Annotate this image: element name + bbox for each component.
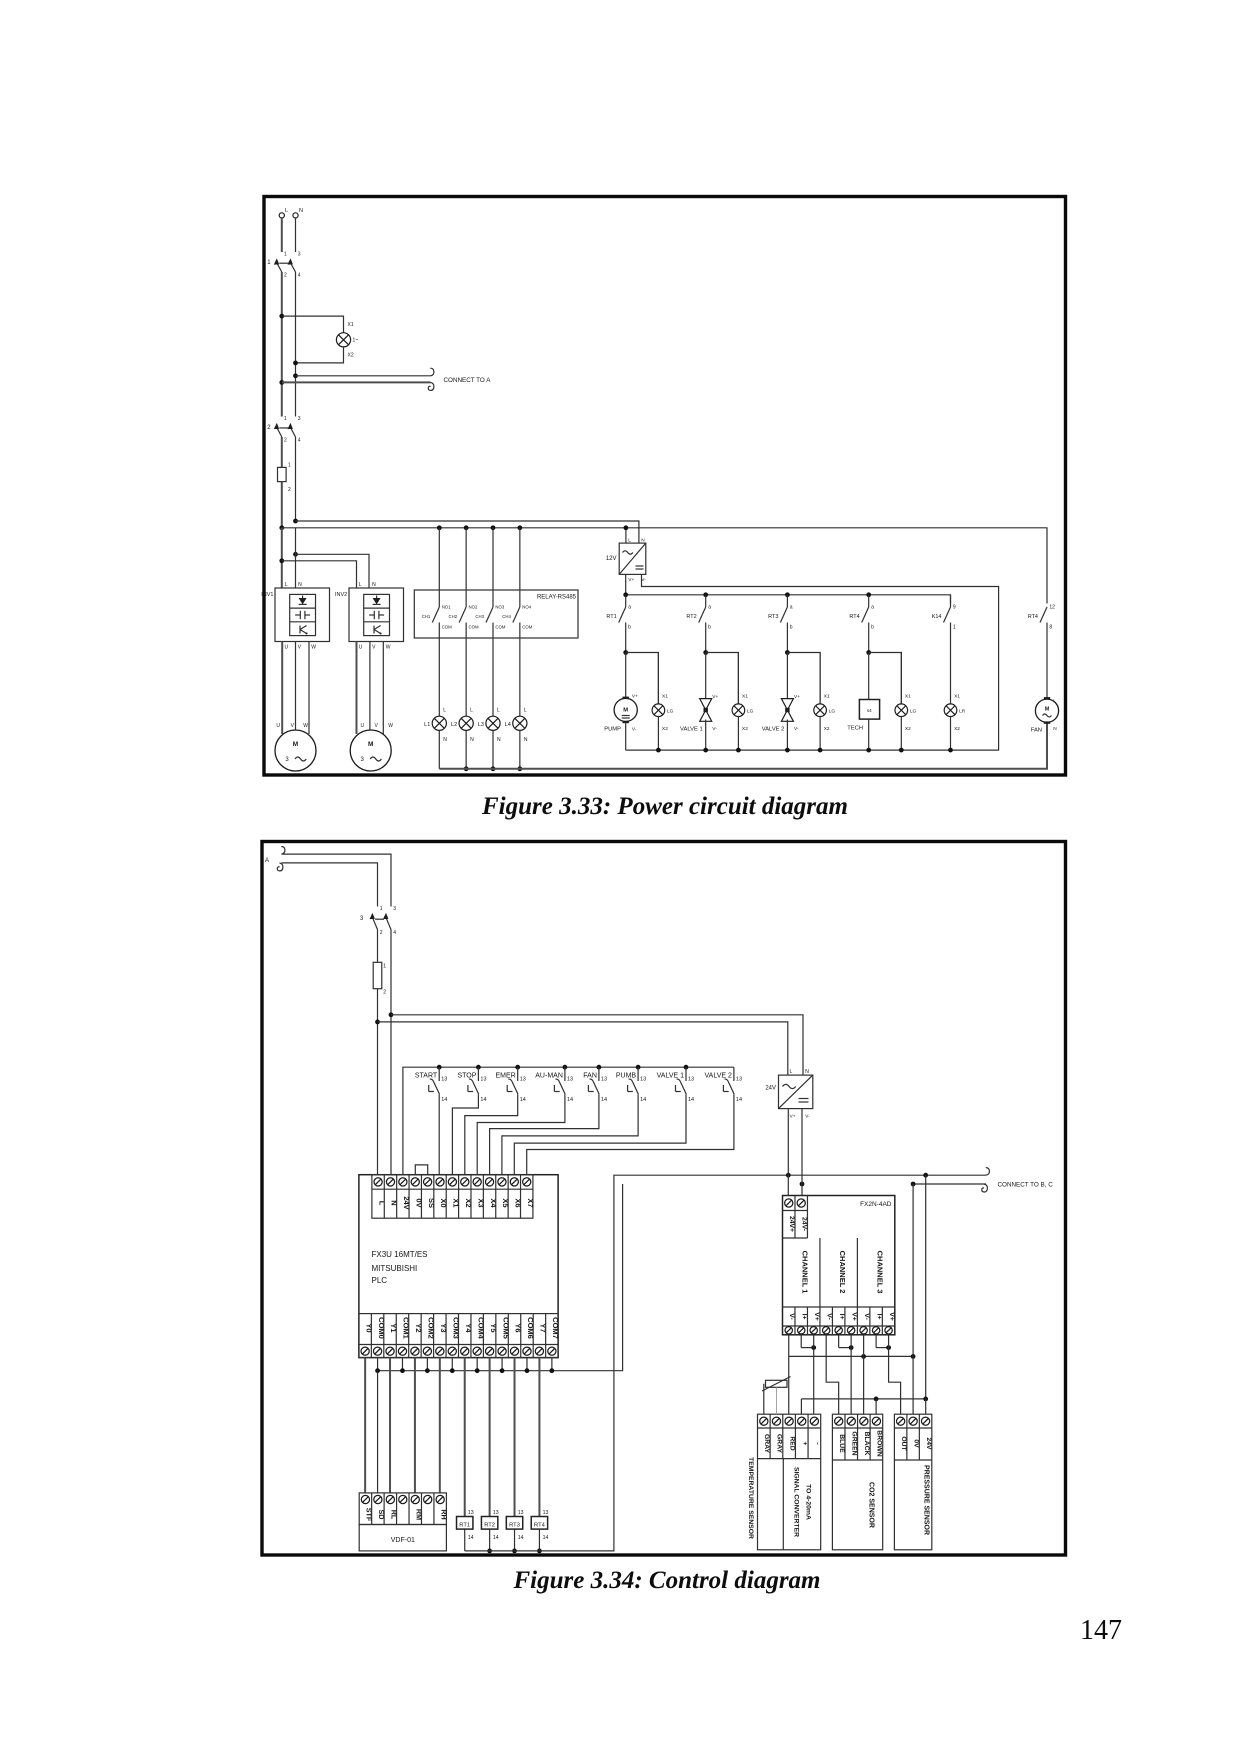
svg-text:VDF-01: VDF-01	[391, 1537, 415, 1544]
svg-text:14: 14	[480, 1097, 486, 1103]
svg-text:L: L	[285, 582, 288, 588]
svg-text:b: b	[628, 625, 631, 631]
svg-text:L: L	[628, 538, 631, 544]
svg-text:M: M	[1045, 707, 1050, 713]
svg-text:V: V	[291, 723, 295, 729]
svg-text:V-: V-	[788, 1313, 795, 1319]
svg-text:13: 13	[520, 1077, 526, 1083]
svg-text:COM: COM	[495, 625, 505, 630]
svg-text:13: 13	[567, 1077, 573, 1083]
svg-text:BLUE: BLUE	[838, 1434, 845, 1453]
svg-text:RT4: RT4	[534, 1522, 546, 1528]
svg-text:L: L	[359, 582, 362, 588]
svg-text:0V: 0V	[414, 1198, 423, 1207]
svg-text:VALVE 1: VALVE 1	[657, 1073, 684, 1080]
svg-text:TECH: TECH	[847, 726, 863, 732]
svg-text:SIGNAL CONVERTER: SIGNAL CONVERTER	[793, 1467, 800, 1537]
svg-text:V+: V+	[794, 694, 800, 700]
svg-text:N: N	[524, 737, 528, 743]
svg-text:V: V	[375, 723, 379, 729]
svg-text:a: a	[871, 605, 874, 611]
svg-text:3: 3	[298, 252, 301, 258]
svg-text:EMER: EMER	[495, 1073, 515, 1080]
svg-text:14: 14	[518, 1535, 524, 1541]
svg-text:2: 2	[284, 273, 287, 279]
svg-text:12V: 12V	[606, 556, 617, 562]
svg-text:-: -	[814, 1442, 821, 1444]
svg-text:V: V	[298, 645, 302, 651]
svg-text:RT1: RT1	[606, 614, 616, 620]
svg-text:NO4: NO4	[522, 605, 531, 610]
svg-text:X6: X6	[514, 1198, 523, 1207]
svg-text:X1: X1	[742, 693, 748, 699]
svg-text:X1: X1	[824, 693, 830, 699]
svg-text:0V: 0V	[912, 1439, 919, 1448]
svg-text:Y6: Y6	[514, 1323, 523, 1332]
svg-text:SD: SD	[377, 1510, 386, 1520]
svg-text:X1: X1	[662, 693, 668, 699]
svg-text:X0: X0	[439, 1198, 448, 1207]
svg-text:V+: V+	[632, 694, 638, 700]
svg-text:8: 8	[1049, 625, 1052, 631]
svg-text:LR: LR	[959, 708, 966, 714]
svg-text:OUT: OUT	[900, 1436, 907, 1451]
svg-text:N: N	[1053, 726, 1057, 732]
svg-text:+: +	[801, 1442, 808, 1446]
svg-text:L: L	[377, 1201, 386, 1206]
svg-text:U: U	[276, 723, 280, 729]
svg-text:U: U	[359, 645, 363, 651]
svg-text:X3: X3	[476, 1198, 485, 1207]
svg-text:V+: V+	[628, 577, 634, 583]
svg-text:14: 14	[601, 1097, 607, 1103]
svg-text:9: 9	[953, 605, 956, 611]
svg-text:1: 1	[383, 964, 386, 970]
svg-text:NO1: NO1	[442, 605, 451, 610]
svg-text:13: 13	[518, 1510, 524, 1516]
svg-text:VALVE 1: VALVE 1	[680, 727, 703, 733]
svg-text:3: 3	[298, 416, 301, 422]
svg-text:V-: V-	[794, 726, 799, 732]
svg-text:V-: V-	[825, 1313, 832, 1319]
svg-text:FX2N-4AD: FX2N-4AD	[860, 1201, 892, 1208]
svg-text:VALVE 2: VALVE 2	[705, 1073, 732, 1080]
svg-text:3: 3	[360, 916, 364, 922]
svg-text:b: b	[790, 625, 793, 631]
svg-text:RH: RH	[439, 1509, 448, 1519]
svg-text:Y0: Y0	[364, 1323, 373, 1332]
svg-text:SS: SS	[427, 1198, 436, 1208]
svg-text:STOP: STOP	[457, 1073, 476, 1080]
svg-text:2: 2	[380, 930, 383, 936]
svg-text:14: 14	[520, 1097, 526, 1103]
svg-text:LG: LG	[910, 708, 917, 714]
svg-text:M: M	[293, 741, 298, 748]
svg-text:COM: COM	[522, 625, 532, 630]
svg-text:24V: 24V	[765, 1086, 776, 1092]
svg-text:COM: COM	[469, 625, 479, 630]
svg-text:COM: COM	[442, 625, 452, 630]
svg-text:RT3: RT3	[509, 1522, 520, 1528]
svg-text:X2: X2	[905, 726, 911, 732]
svg-text:13: 13	[468, 1510, 474, 1516]
svg-text:CONNECT TO B, C: CONNECT TO B, C	[998, 1181, 1054, 1188]
svg-text:X2: X2	[824, 726, 830, 732]
svg-text:14: 14	[441, 1097, 447, 1103]
svg-text:FX3U 16MT/ES: FX3U 16MT/ES	[372, 1250, 428, 1259]
svg-text:I+: I+	[838, 1314, 845, 1320]
svg-text:W: W	[303, 723, 308, 729]
svg-text:RELAY-RS485: RELAY-RS485	[537, 594, 577, 600]
svg-text:COM0: COM0	[377, 1317, 386, 1339]
svg-text:2: 2	[383, 990, 386, 996]
svg-text:FAN: FAN	[583, 1073, 597, 1080]
svg-text:13: 13	[688, 1077, 694, 1083]
svg-text:L: L	[1053, 698, 1056, 704]
svg-text:CH2: CH2	[449, 614, 458, 619]
svg-text:s4: s4	[867, 708, 872, 713]
svg-text:X1: X1	[905, 693, 911, 699]
svg-text:V+: V+	[850, 1312, 857, 1321]
svg-text:L2: L2	[451, 722, 457, 728]
svg-text:a: a	[790, 605, 793, 611]
svg-text:L: L	[497, 708, 500, 714]
svg-text:14: 14	[543, 1535, 549, 1541]
svg-text:BLACK: BLACK	[863, 1432, 870, 1456]
svg-text:M: M	[368, 741, 373, 748]
svg-text:L: L	[790, 1069, 793, 1075]
svg-text:COM4: COM4	[476, 1317, 485, 1339]
svg-text:Y4: Y4	[464, 1323, 473, 1333]
svg-text:START: START	[415, 1073, 438, 1080]
svg-text:1: 1	[288, 463, 291, 469]
svg-text:VALVE 2: VALVE 2	[762, 727, 785, 733]
svg-text:CO2 SENSOR: CO2 SENSOR	[868, 1482, 875, 1528]
svg-text:13: 13	[640, 1077, 646, 1083]
svg-text:CHANNEL 3: CHANNEL 3	[876, 1251, 885, 1294]
svg-text:RL: RL	[390, 1510, 399, 1520]
svg-text:RT4: RT4	[849, 614, 859, 620]
svg-text:4: 4	[393, 930, 396, 936]
svg-text:L: L	[285, 208, 288, 214]
svg-text:N: N	[443, 737, 447, 743]
svg-text:X2: X2	[662, 726, 668, 732]
svg-text:12: 12	[1049, 605, 1055, 611]
svg-text:L3: L3	[478, 722, 484, 728]
svg-text:U: U	[285, 645, 289, 651]
svg-text:U: U	[361, 723, 365, 729]
svg-text:NO3: NO3	[495, 605, 504, 610]
svg-text:1: 1	[267, 260, 271, 266]
svg-text:V+: V+	[712, 694, 718, 700]
svg-text:X5: X5	[501, 1198, 510, 1207]
svg-text:COM3: COM3	[451, 1317, 460, 1339]
svg-text:COM6: COM6	[526, 1317, 535, 1339]
svg-text:X1: X1	[954, 693, 960, 699]
svg-text:N: N	[298, 582, 302, 588]
svg-text:X4: X4	[489, 1198, 498, 1208]
svg-text:CHANNEL 2: CHANNEL 2	[838, 1251, 847, 1294]
svg-text:CHANNEL 1: CHANNEL 1	[801, 1251, 810, 1294]
svg-text:X2: X2	[464, 1198, 473, 1207]
svg-text:a: a	[708, 605, 711, 611]
svg-text:X2: X2	[954, 726, 960, 732]
svg-text:2: 2	[288, 487, 291, 493]
svg-text:I+: I+	[875, 1314, 882, 1320]
svg-text:TO 4-20mA: TO 4-20mA	[805, 1484, 812, 1520]
svg-text:24V: 24V	[402, 1196, 411, 1209]
svg-text:MITSUBISHI: MITSUBISHI	[372, 1264, 418, 1273]
svg-text:2: 2	[267, 425, 271, 431]
svg-text:1~: 1~	[353, 338, 359, 344]
svg-text:PLC: PLC	[372, 1276, 388, 1285]
svg-text:LG: LG	[829, 708, 836, 714]
svg-text:1: 1	[284, 416, 287, 422]
svg-text:INV1: INV1	[261, 592, 273, 598]
svg-text:V+: V+	[888, 1312, 895, 1321]
svg-text:V+: V+	[790, 1114, 796, 1120]
svg-text:N: N	[641, 538, 645, 544]
svg-text:Y3: Y3	[439, 1323, 448, 1332]
svg-text:A: A	[265, 858, 269, 864]
svg-text:K14: K14	[932, 614, 942, 620]
svg-text:STF: STF	[365, 1508, 374, 1522]
svg-text:V-: V-	[632, 727, 637, 733]
svg-text:L4: L4	[505, 722, 511, 728]
svg-text:14: 14	[640, 1097, 646, 1103]
svg-text:13: 13	[441, 1077, 447, 1083]
svg-text:V-: V-	[712, 726, 717, 732]
svg-text:1: 1	[380, 906, 383, 912]
svg-text:N: N	[497, 737, 501, 743]
svg-text:4: 4	[298, 273, 301, 279]
svg-text:RT4: RT4	[1028, 614, 1038, 620]
svg-text:W: W	[311, 645, 316, 651]
svg-text:PRESSURE SENSOR: PRESSURE SENSOR	[923, 1465, 930, 1535]
svg-text:PUMB: PUMB	[616, 1073, 637, 1080]
svg-text:13: 13	[601, 1077, 607, 1083]
svg-text:13: 13	[736, 1077, 742, 1083]
svg-text:1: 1	[284, 252, 287, 258]
svg-text:X7: X7	[526, 1198, 535, 1207]
svg-text:GRAY: GRAY	[776, 1434, 783, 1453]
svg-text:RT3: RT3	[768, 614, 778, 620]
svg-text:L1: L1	[424, 722, 430, 728]
svg-text:b: b	[871, 625, 874, 631]
svg-text:1: 1	[953, 625, 956, 631]
svg-text:LG: LG	[667, 708, 674, 714]
svg-text:TEMPERATURE SENSOR: TEMPERATURE SENSOR	[747, 1457, 754, 1539]
svg-text:Y5: Y5	[489, 1323, 498, 1332]
svg-text:N: N	[470, 737, 474, 743]
svg-text:NO2: NO2	[469, 605, 478, 610]
svg-text:L: L	[524, 708, 527, 714]
svg-text:RT2: RT2	[686, 614, 696, 620]
svg-text:I+: I+	[800, 1314, 807, 1320]
svg-text:CONNECT TO A: CONNECT TO A	[444, 377, 492, 384]
svg-text:b: b	[708, 625, 711, 631]
svg-text:FAN: FAN	[1031, 728, 1042, 734]
svg-text:COM5: COM5	[501, 1317, 510, 1339]
svg-text:RT1: RT1	[459, 1522, 470, 1528]
svg-text:24V: 24V	[925, 1437, 932, 1450]
svg-text:RT2: RT2	[484, 1522, 495, 1528]
svg-text:LG: LG	[747, 708, 754, 714]
svg-text:W: W	[386, 645, 391, 651]
svg-text:COM7: COM7	[551, 1317, 560, 1339]
svg-text:X2: X2	[742, 726, 748, 732]
svg-text:14: 14	[567, 1097, 573, 1103]
svg-text:CH3: CH3	[475, 614, 484, 619]
svg-text:24V-: 24V-	[800, 1217, 807, 1231]
svg-text:AU-MAN: AU-MAN	[535, 1073, 563, 1080]
svg-text:CH4: CH4	[502, 614, 511, 619]
svg-text:N: N	[299, 208, 303, 214]
svg-text:14: 14	[493, 1535, 499, 1541]
svg-text:BROWN: BROWN	[876, 1430, 883, 1457]
svg-text:N: N	[390, 1200, 399, 1205]
svg-text:N: N	[372, 582, 376, 588]
svg-text:3: 3	[393, 906, 396, 912]
svg-text:24V+: 24V+	[788, 1216, 795, 1232]
svg-text:GRAY: GRAY	[763, 1434, 770, 1453]
svg-text:13: 13	[480, 1077, 486, 1083]
svg-text:V-: V-	[805, 1114, 810, 1120]
svg-text:X1: X1	[452, 1198, 461, 1207]
svg-text:CH1: CH1	[422, 614, 431, 619]
svg-text:V-: V-	[863, 1313, 870, 1319]
svg-text:PUMP: PUMP	[604, 727, 621, 733]
svg-text:W: W	[388, 723, 393, 729]
svg-text:4: 4	[298, 438, 301, 444]
svg-text:M: M	[623, 708, 628, 714]
svg-text:L: L	[470, 708, 473, 714]
svg-text:14: 14	[736, 1097, 742, 1103]
svg-text:L: L	[443, 708, 446, 714]
svg-text:Y1: Y1	[389, 1323, 398, 1332]
svg-text:13: 13	[543, 1510, 549, 1516]
svg-text:2: 2	[284, 438, 287, 444]
svg-text:N: N	[805, 1069, 809, 1075]
svg-text:14: 14	[688, 1097, 694, 1103]
svg-text:V: V	[372, 645, 376, 651]
svg-text:GREEN: GREEN	[850, 1431, 857, 1455]
svg-text:COM1: COM1	[402, 1317, 411, 1339]
svg-text:RM: RM	[414, 1509, 423, 1520]
svg-text:INV2: INV2	[335, 592, 347, 598]
svg-text:X1: X1	[348, 322, 354, 328]
svg-text:X2: X2	[348, 353, 354, 359]
svg-text:V+: V+	[813, 1312, 820, 1321]
svg-text:Y7: Y7	[539, 1323, 548, 1332]
svg-text:13: 13	[493, 1510, 499, 1516]
svg-text:a: a	[628, 605, 631, 611]
svg-text:14: 14	[468, 1535, 474, 1541]
svg-text:COM2: COM2	[427, 1317, 436, 1339]
svg-text:RED: RED	[788, 1436, 795, 1450]
svg-text:Y2: Y2	[414, 1323, 423, 1332]
